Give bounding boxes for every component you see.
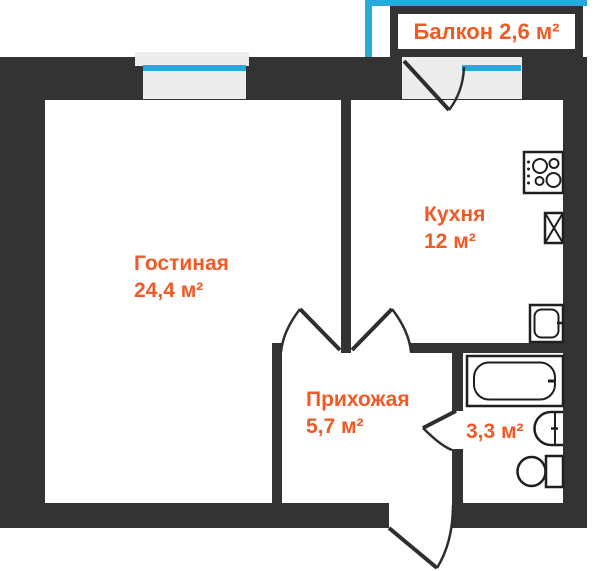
appliance-icon (530, 305, 564, 342)
entrance-door (389, 505, 453, 568)
bathroom-area: 3,3 м² (466, 418, 524, 445)
kitchen-window (402, 57, 522, 99)
sink-icon (535, 412, 564, 445)
balcony-room: Балкон 2,6 м² (390, 6, 583, 57)
balcony-glazing-left (365, 0, 372, 57)
wall-kitchen-bathroom (410, 343, 563, 353)
wall-bathroom-lower (452, 449, 463, 503)
wall-left (0, 57, 45, 528)
wall-bottom-left (0, 503, 389, 528)
balcony-label: Балкон 2,6 м² (414, 21, 560, 43)
kitchen-area: 12 м² (424, 228, 485, 255)
kitchen-label: Кухня 12 м² (424, 201, 485, 255)
floor-plan: Балкон 2,6 м² (0, 0, 600, 571)
wall-bottom-right (452, 503, 587, 528)
kitchen-window-glass (462, 65, 521, 71)
kitchen-name: Кухня (424, 201, 485, 228)
wall-bathroom-upper (452, 353, 463, 411)
living-room-name: Гостиная (134, 250, 229, 277)
vent-shaft-icon (545, 213, 563, 243)
living-room-door (281, 309, 340, 352)
kitchen-door (352, 309, 411, 352)
living-room-label: Гостиная 24,4 м² (134, 250, 229, 304)
wall-living-hallway (272, 343, 282, 503)
living-room-window-glass (143, 65, 246, 71)
wall-right (563, 57, 587, 528)
bathroom-door (423, 411, 456, 450)
hallway-name: Прихожая (306, 386, 410, 413)
bathroom-label: 3,3 м² (466, 418, 524, 445)
living-room-area: 24,4 м² (134, 277, 229, 304)
toilet-icon (518, 456, 564, 487)
wall-living-kitchen (341, 99, 351, 353)
bathtub-icon (467, 356, 563, 406)
hallway-area: 5,7 м² (306, 413, 410, 440)
stove-icon (524, 152, 563, 193)
hallway-label: Прихожая 5,7 м² (306, 386, 410, 440)
